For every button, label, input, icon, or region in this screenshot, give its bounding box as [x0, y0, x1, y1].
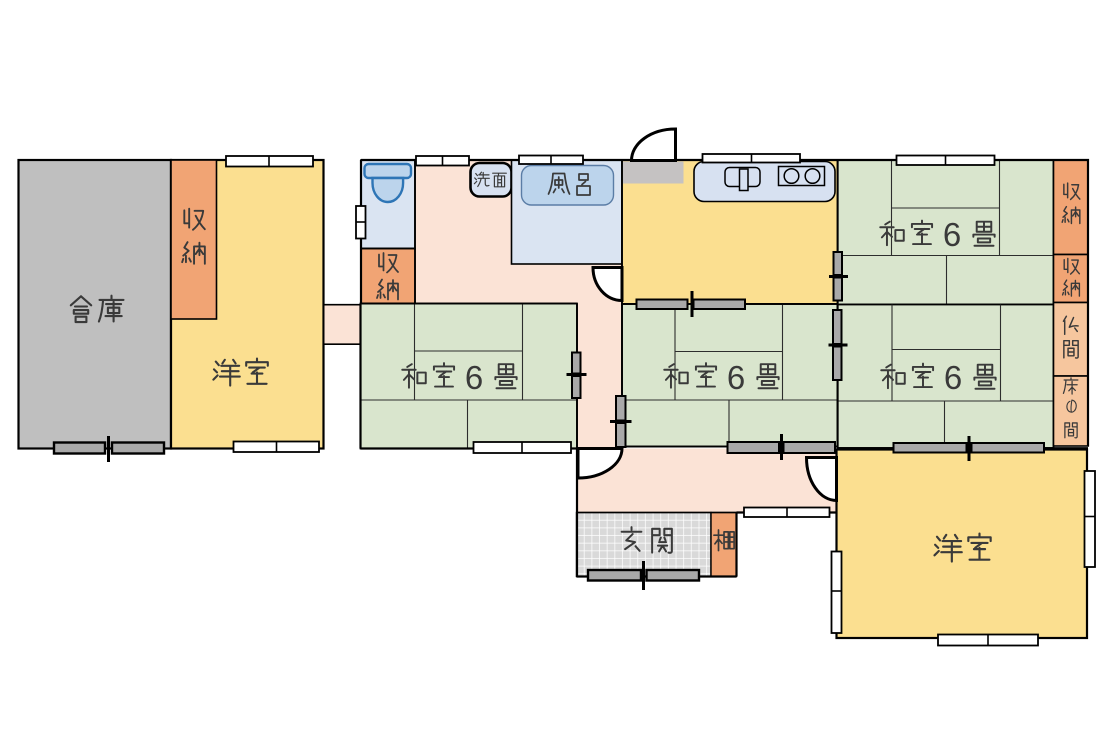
svg-text:6: 6 [727, 359, 745, 396]
svg-text:6: 6 [944, 359, 962, 396]
svg-text:6: 6 [465, 359, 483, 396]
svg-text:6: 6 [943, 216, 961, 253]
